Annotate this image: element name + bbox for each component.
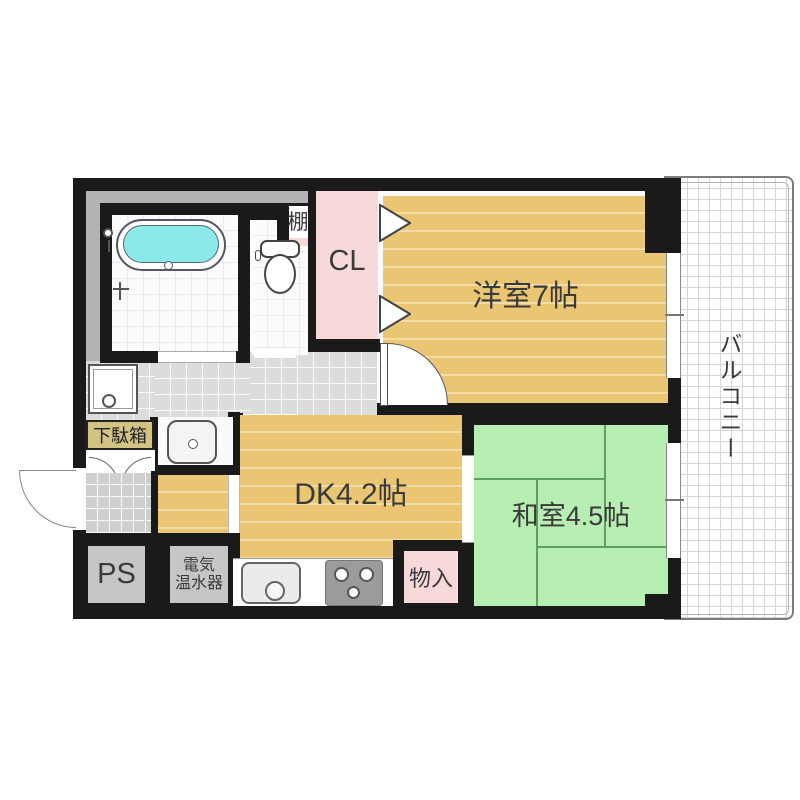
stove-burner xyxy=(334,567,349,582)
dk-washitsu-opening xyxy=(462,455,474,543)
washbasin-drain xyxy=(188,439,198,449)
dk-label: DK4.2帖 xyxy=(240,474,462,508)
dk-west-strip xyxy=(158,475,228,533)
folding-door-icon xyxy=(379,295,411,333)
japanese-room-label: 和室4.5帖 xyxy=(474,497,668,529)
top-right-wall-notch xyxy=(645,191,681,253)
wall-faucet-icon xyxy=(113,288,129,290)
toilet-door-opening xyxy=(254,349,296,358)
shower-head-icon xyxy=(103,228,113,238)
entrance-exterior-door-arc xyxy=(19,470,76,528)
folding-door-icon xyxy=(379,204,411,242)
tatami-line xyxy=(474,478,604,480)
dk-west-wall xyxy=(151,471,158,535)
stove-burner xyxy=(347,586,360,599)
bottom-right-wall-notch xyxy=(645,594,668,606)
window-tick xyxy=(665,499,684,501)
bathtub-water xyxy=(123,225,219,263)
storage-room: 物入 xyxy=(404,551,458,603)
entrance-tile xyxy=(86,473,155,533)
closet-bottom-wall xyxy=(308,339,380,352)
stove-burner xyxy=(359,567,374,582)
water-heater-label-line1: 電気 xyxy=(183,557,215,575)
ps-room: PS xyxy=(88,546,145,603)
window-western-room xyxy=(666,253,681,378)
closet-left-wall xyxy=(308,191,316,352)
washbasin xyxy=(167,420,217,464)
washing-machine-pan xyxy=(88,364,138,414)
shower-hose-icon xyxy=(108,240,110,252)
bathtub xyxy=(116,219,226,271)
nook-bottom-wall xyxy=(150,465,235,475)
dead-space-left xyxy=(86,191,100,363)
toilet-flush-knob xyxy=(255,250,261,261)
bathroom-door-opening xyxy=(158,351,236,363)
western-room-label: 洋室7帖 xyxy=(383,276,668,310)
window-japanese-room xyxy=(666,443,681,558)
wall-faucet-stem-icon xyxy=(119,282,121,300)
hall-tile-right xyxy=(250,352,377,415)
tatami-line xyxy=(536,546,668,548)
closet-label: CL xyxy=(316,243,378,279)
balcony-label: バルコニー xyxy=(714,292,744,502)
window-tick xyxy=(665,314,684,316)
sink-drain xyxy=(265,581,285,601)
dk-west-gap xyxy=(228,475,240,533)
kitchen-sink xyxy=(241,562,301,604)
gas-stove xyxy=(325,560,383,606)
hall-tile-mid xyxy=(155,363,250,417)
western-room-door-leaf xyxy=(380,343,388,406)
washing-machine-drain xyxy=(102,394,116,408)
floorplan-canvas: バルコニー 棚 CL 洋室7帖 xyxy=(0,0,800,800)
water-heater-label-line2: 温水器 xyxy=(175,575,223,593)
shoe-cabinet: 下駄箱 xyxy=(86,420,154,450)
water-heater-room: 電気 温水器 xyxy=(170,546,228,603)
toilet-bowl xyxy=(264,254,296,294)
bathtub-drain-icon xyxy=(164,261,173,270)
